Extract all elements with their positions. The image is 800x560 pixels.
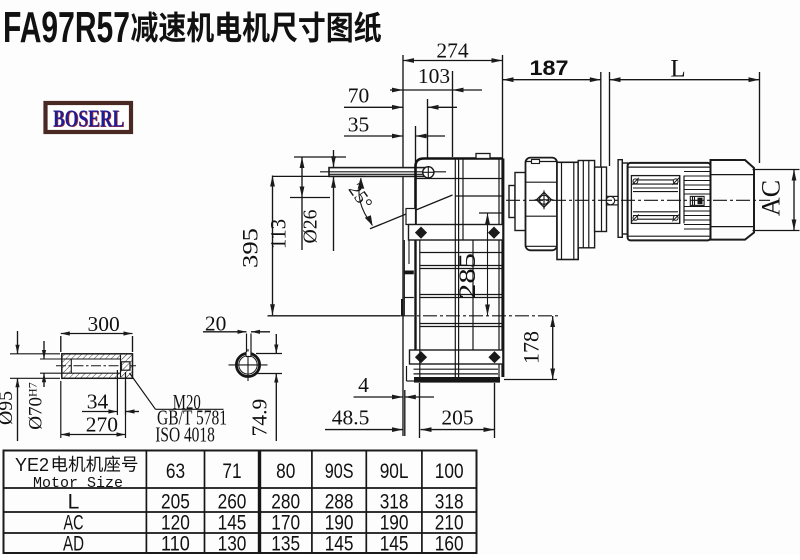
svg-text:Ø95: Ø95 (0, 391, 17, 425)
svg-text:103: 103 (418, 64, 450, 88)
svg-text:AC: AC (64, 511, 84, 534)
svg-text:120: 120 (161, 511, 190, 534)
svg-text:YE2: YE2 (15, 455, 49, 475)
svg-text:135: 135 (271, 533, 300, 556)
svg-text:70: 70 (348, 84, 370, 108)
svg-text:145: 145 (325, 533, 354, 556)
svg-text:270: 270 (86, 413, 118, 437)
svg-text:90L: 90L (380, 460, 409, 483)
svg-text:63: 63 (166, 460, 185, 483)
svg-text:145: 145 (218, 511, 247, 534)
svg-text:280: 280 (271, 491, 300, 514)
svg-text:BOSERL: BOSERL (53, 107, 124, 133)
svg-text:L: L (670, 56, 685, 83)
svg-text:170: 170 (271, 511, 300, 534)
svg-text:130: 130 (218, 533, 247, 556)
svg-text:178: 178 (519, 331, 544, 364)
svg-text:210: 210 (435, 511, 464, 534)
svg-text:48.5: 48.5 (332, 406, 370, 430)
svg-text:FA97R57: FA97R57 (3, 3, 130, 52)
svg-text:190: 190 (380, 511, 409, 534)
svg-text:4: 4 (358, 373, 369, 397)
svg-text:100: 100 (435, 460, 464, 483)
svg-text:110: 110 (161, 533, 190, 556)
svg-text:20: 20 (205, 312, 227, 336)
svg-text:71: 71 (222, 460, 241, 483)
svg-text:80: 80 (276, 460, 295, 483)
svg-text:260: 260 (218, 491, 247, 514)
svg-text:90S: 90S (325, 460, 354, 483)
svg-text:AD: AD (63, 533, 84, 556)
svg-text:34: 34 (87, 390, 109, 414)
svg-text:288: 288 (325, 491, 354, 514)
svg-text:L: L (68, 491, 80, 514)
svg-text:205: 205 (441, 406, 473, 430)
svg-text:160: 160 (435, 533, 464, 556)
svg-text:274: 274 (436, 39, 469, 63)
svg-text:113: 113 (266, 219, 291, 249)
svg-text:35: 35 (348, 113, 370, 137)
svg-text:Motor Size: Motor Size (33, 475, 123, 492)
svg-text:300: 300 (87, 312, 119, 336)
svg-text:285: 285 (455, 253, 480, 299)
svg-text:74.9: 74.9 (247, 399, 271, 437)
svg-text:318: 318 (380, 491, 409, 514)
svg-text:395: 395 (238, 228, 263, 268)
svg-text:187: 187 (530, 57, 569, 80)
svg-text:145: 145 (380, 533, 409, 556)
svg-text:205: 205 (161, 491, 190, 514)
svg-text:318: 318 (435, 491, 464, 514)
svg-text:AC: AC (757, 180, 786, 216)
svg-text:Ø26: Ø26 (300, 210, 322, 244)
svg-text:ISO 4018: ISO 4018 (155, 422, 215, 446)
svg-text:190: 190 (325, 511, 354, 534)
